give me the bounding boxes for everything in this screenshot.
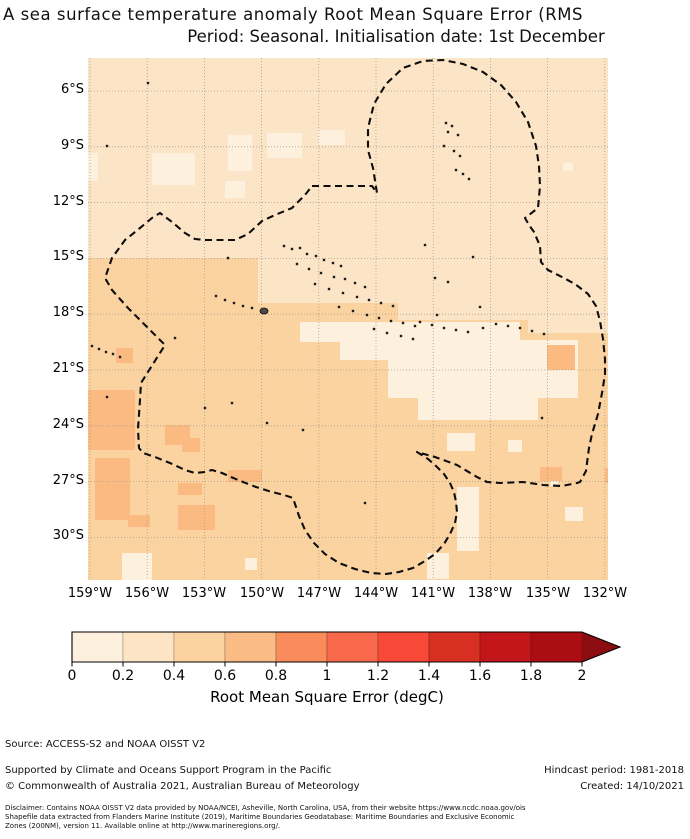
island-dot: [482, 327, 484, 329]
rmse-high-region: [95, 458, 130, 520]
x-axis-label: 147°W: [287, 586, 351, 601]
x-axis-label: 132°W: [573, 586, 637, 601]
island-dot: [340, 265, 342, 267]
island-dot: [386, 332, 388, 334]
x-axis-label: 159°W: [58, 586, 122, 601]
island-dot: [457, 134, 459, 136]
island-dot: [412, 338, 414, 340]
island-dot: [354, 282, 356, 284]
colorbar-label: Root Mean Square Error (degC): [210, 688, 444, 706]
island-dot: [445, 122, 447, 124]
island-dot: [390, 320, 392, 322]
island-dot: [233, 302, 235, 304]
island-dot: [315, 255, 317, 257]
footer-supported: Supported by Climate and Oceans Support …: [5, 765, 331, 776]
x-axis-label: 150°W: [230, 586, 294, 601]
island-dot: [302, 429, 304, 431]
island-dot: [296, 263, 298, 265]
disclaimer-line-1: Disclaimer: Contains NOAA OISST V2 data …: [5, 804, 526, 812]
colorbar-segment: [276, 632, 327, 662]
colorbar-tick-label: 1.6: [460, 668, 500, 684]
island-dot: [105, 351, 107, 353]
island-dot: [328, 288, 330, 290]
island-dot: [543, 333, 545, 335]
y-axis-label: 12°S: [0, 194, 84, 209]
footer-created-date: Created: 14/10/2021: [580, 781, 684, 792]
colorbar-segment: [429, 632, 480, 662]
island-dot: [434, 277, 436, 279]
rmse-low-region: [225, 181, 245, 198]
x-axis-label: 141°W: [401, 586, 465, 601]
colorbar-segment: [327, 632, 378, 662]
island-dot: [455, 169, 457, 171]
island-dot: [356, 296, 358, 298]
island-dot: [306, 253, 308, 255]
rmse-low-region: [245, 558, 257, 570]
island-dot: [400, 335, 402, 337]
island-dot: [342, 292, 344, 294]
island-dot: [204, 407, 206, 409]
island-dot: [91, 345, 93, 347]
island-dot: [467, 331, 469, 333]
island-dot: [451, 125, 453, 127]
rmse-high-region: [88, 390, 135, 450]
island-dot: [424, 244, 426, 246]
island-dot: [320, 272, 322, 274]
x-axis-label: 138°W: [458, 586, 522, 601]
island-dot: [112, 353, 114, 355]
rmse-high-region: [182, 438, 200, 452]
island-dot: [215, 295, 217, 297]
island-dot: [119, 356, 121, 358]
rmse-high-region: [178, 483, 202, 495]
island-dot: [338, 306, 340, 308]
island-dot: [447, 281, 449, 283]
rmse-low-region: [122, 553, 152, 580]
island-dot: [98, 348, 100, 350]
island-dot: [479, 306, 481, 308]
x-axis-label: 135°W: [516, 586, 580, 601]
island-dot: [459, 155, 461, 157]
rmse-low-region: [152, 153, 195, 185]
colorbar-segment: [72, 632, 123, 662]
rmse-low-region: [565, 507, 583, 521]
colorbar-segment: [123, 632, 174, 662]
y-axis-label: 18°S: [0, 305, 84, 320]
island-dot: [447, 131, 449, 133]
island-dot: [352, 310, 354, 312]
colorbar-tick-label: 0.2: [103, 668, 143, 684]
island-dot: [314, 283, 316, 285]
map-figure: [88, 58, 608, 580]
island-dot: [462, 173, 464, 175]
island-dot: [380, 302, 382, 304]
island-dot: [266, 422, 268, 424]
colorbar-segment: [225, 632, 276, 662]
island-dot: [333, 276, 335, 278]
rmse-low-region: [447, 433, 475, 451]
island-dot: [227, 257, 229, 259]
island-dot: [364, 286, 366, 288]
rmse-high-region: [540, 467, 562, 481]
island-dot: [541, 417, 543, 419]
x-axis-label: 144°W: [344, 586, 408, 601]
island-dot: [224, 299, 226, 301]
colorbar-tick-label: 1.8: [511, 668, 551, 684]
island-dot: [106, 145, 108, 147]
island-dot: [174, 337, 176, 339]
y-axis-label: 30°S: [0, 528, 84, 543]
rmse-low-region: [563, 163, 573, 171]
rmse-low-region: [228, 135, 252, 171]
island-dot: [299, 247, 301, 249]
island-dot: [106, 396, 108, 398]
island-dot: [495, 323, 497, 325]
island-dot: [443, 327, 445, 329]
island-dot: [431, 324, 433, 326]
rmse-high-region: [128, 515, 150, 527]
island-dot: [323, 259, 325, 261]
rmse-low-region: [300, 322, 346, 342]
island-dot: [251, 307, 253, 309]
island-dot: [519, 327, 521, 329]
colorbar-tick-label: 0.8: [256, 668, 296, 684]
y-axis-label: 6°S: [0, 82, 84, 97]
rmse-high-region: [605, 468, 608, 483]
island-dot: [308, 268, 310, 270]
island-dot: [242, 305, 244, 307]
footer-source: Source: ACCESS-S2 and NOAA OISST V2: [5, 739, 205, 750]
figure: A sea surface temperature anomaly Root M…: [0, 0, 690, 839]
island-dot: [283, 245, 285, 247]
island-dot: [402, 322, 404, 324]
colorbar-tick-label: 1.4: [409, 668, 449, 684]
rmse-high-region: [116, 348, 133, 363]
colorbar-tick-label: 0: [52, 668, 92, 684]
island-dot: [436, 314, 438, 316]
island-dot: [364, 502, 366, 504]
y-axis-label: 24°S: [0, 417, 84, 432]
island-dot: [147, 82, 149, 84]
colorbar-tick-label: 0.6: [205, 668, 245, 684]
colorbar-tick-label: 1.2: [358, 668, 398, 684]
island-dot: [468, 178, 470, 180]
rmse-low-region: [267, 133, 302, 158]
island-dot: [332, 262, 334, 264]
y-axis-label: 15°S: [0, 249, 84, 264]
x-axis-label: 153°W: [172, 586, 236, 601]
colorbar-segment: [174, 632, 225, 662]
colorbar-tick-label: 2: [562, 668, 602, 684]
disclaimer-line-2: Shapefile data extracted from Flanders M…: [5, 813, 515, 821]
island-dot: [368, 299, 370, 301]
island-dot: [443, 145, 445, 147]
island-dot: [419, 321, 421, 323]
rmse-low-region: [457, 487, 479, 551]
island-dot: [291, 248, 293, 250]
footer-copyright: © Commonwealth of Australia 2021, Austra…: [5, 781, 360, 792]
island-dot: [453, 150, 455, 152]
island-dot: [392, 305, 394, 307]
colorbar: [0, 630, 690, 670]
island-dot: [231, 402, 233, 404]
colorbar-tick-label: 1: [307, 668, 347, 684]
y-axis-label: 21°S: [0, 361, 84, 376]
figure-title-line2: Period: Seasonal. Initialisation date: 1…: [187, 27, 605, 46]
disclaimer-line-3: Zones (200NM), version 11. Available onl…: [5, 822, 280, 830]
x-axis-label: 156°W: [115, 586, 179, 601]
y-axis-label: 9°S: [0, 138, 84, 153]
colorbar-extend-arrow: [582, 632, 620, 662]
colorbar-segment: [531, 632, 582, 662]
island-dot: [455, 329, 457, 331]
y-axis-label: 27°S: [0, 473, 84, 488]
rmse-low-region: [88, 153, 98, 181]
rmse-low-region: [418, 388, 538, 420]
figure-title-line1: A sea surface temperature anomaly Root M…: [3, 5, 583, 24]
island-dot: [531, 330, 533, 332]
island-dot: [414, 325, 416, 327]
rmse-low-region: [508, 440, 522, 452]
rmse-high-region: [228, 470, 262, 482]
colorbar-tick-label: 0.4: [154, 668, 194, 684]
island-dot: [472, 256, 474, 258]
rmse-high-region: [547, 345, 575, 370]
rmse-low-region: [318, 130, 345, 145]
colorbar-segment: [378, 632, 429, 662]
island-dot: [373, 328, 375, 330]
footer-hindcast-period: Hindcast period: 1981-2018: [544, 765, 684, 776]
colorbar-segment: [480, 632, 531, 662]
island-dot: [378, 317, 380, 319]
rmse-high-region: [178, 505, 215, 530]
island-dot: [507, 325, 509, 327]
island-dot: [344, 278, 346, 280]
sst-rmse-map-svg: [88, 58, 608, 580]
island-tahiti: [260, 308, 268, 314]
island-dot: [366, 314, 368, 316]
